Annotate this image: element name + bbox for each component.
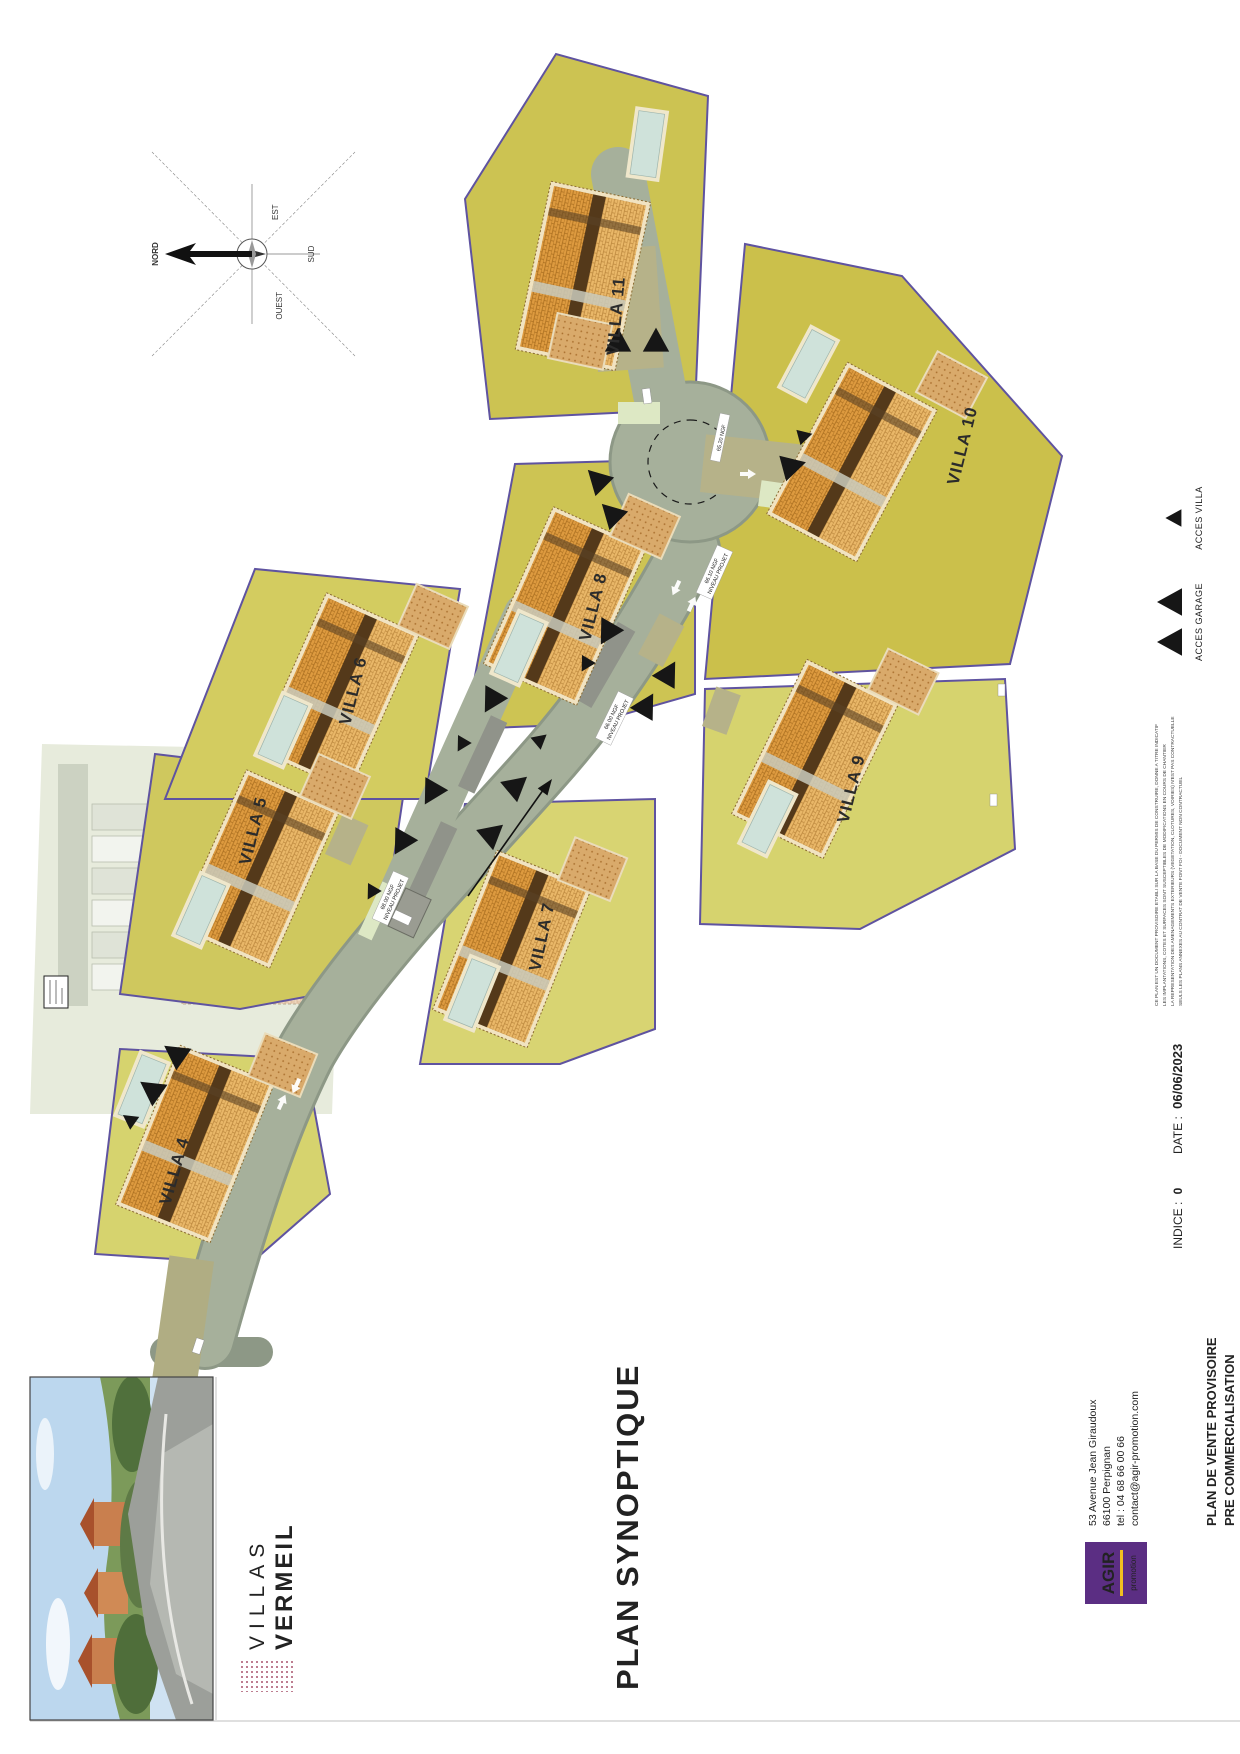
existing-plan-stamp [44,976,68,1008]
brand-name-top: VILLAS [246,1537,269,1650]
photo-block [30,1376,216,1720]
disclaimer-line: CE PLAN EST UN DOCUMENT PROVISOIRE ETABL… [1154,724,1160,1006]
doc-status-line2: PRE COMMERCIALISATION [1222,1354,1237,1526]
site-plan-canvas: 1 2 3 4 5 6 [0,0,1240,1754]
compass-south-label: SUD [307,245,316,262]
compass-west-label: OUEST [275,292,284,320]
doc-status-line1: PLAN DE VENTE PROVISOIRE [1204,1337,1219,1526]
agir-logo: AGIR promotion [1085,1542,1147,1604]
garage-access-icon [1157,628,1182,656]
agir-logo-sub: promotion [1129,1555,1138,1591]
landscape-rotation-wrapper: 1 2 3 4 5 6 [0,0,1240,1754]
garage-access-icon [1157,588,1182,616]
disclaimer-line: LES IMPLANTATIONS, COTES ET SURFACES SON… [1162,744,1168,1006]
villa-access-icon [1165,509,1181,527]
address-line: 66100 Perpignan [1101,1446,1113,1526]
indice-value: 0 [1171,1187,1185,1194]
disclaimer-line: LA REPRESENTATION DES AMENAGEMENTS EXTER… [1170,716,1176,1006]
brand-name-bottom: VERMEIL [271,1522,298,1650]
page-title: PLAN SYNOPTIQUE [610,1364,645,1690]
date-label: DATE : [1171,1116,1185,1154]
address-line: contact@agir-promotion.com [1129,1391,1141,1526]
access-legend: ACCES GARAGE ACCES VILLA [1157,486,1204,661]
address-line: tel : 04 68 66 00 66 [1115,1436,1127,1526]
compass-north-label: NORD [151,242,160,266]
legend-villa-label: ACCES VILLA [1194,486,1204,550]
date-value: 06/06/2023 [1170,1044,1185,1109]
plan-sheet: 1 2 3 4 5 6 [0,0,1240,1754]
footer-bar: AGIR promotion 53 Avenue Jean Giraudoux … [1085,486,1237,1604]
project-photo [30,1376,213,1720]
disclaimer-line: SEULS LES PLANS ANNEXES AU CONTRAT DE VE… [1178,777,1184,1006]
site-plan: 1 2 3 4 5 6 [30,54,1062,1400]
date-field: DATE : 06/06/2023 [1170,1044,1185,1154]
legend-garage-label: ACCES GARAGE [1194,583,1204,661]
promoter-address: 53 Avenue Jean Giraudoux 66100 Perpignan… [1087,1391,1141,1526]
document-status: PLAN DE VENTE PROVISOIRE PRE COMMERCIALI… [1204,1337,1237,1526]
agir-logo-text: AGIR [1099,1552,1118,1595]
compass-rose: NORD EST SUD OUEST [151,152,355,356]
indice-label: INDICE : [1171,1202,1185,1249]
address-line: 53 Avenue Jean Giraudoux [1087,1399,1099,1526]
brand-logo: VILLAS VERMEIL [238,1522,298,1692]
compass-east-label: EST [271,204,280,220]
disclaimer-block: CE PLAN EST UN DOCUMENT PROVISOIRE ETABL… [1154,716,1184,1006]
brand-ornament-icon [238,1660,296,1692]
indice-field: INDICE : 0 [1171,1187,1185,1249]
